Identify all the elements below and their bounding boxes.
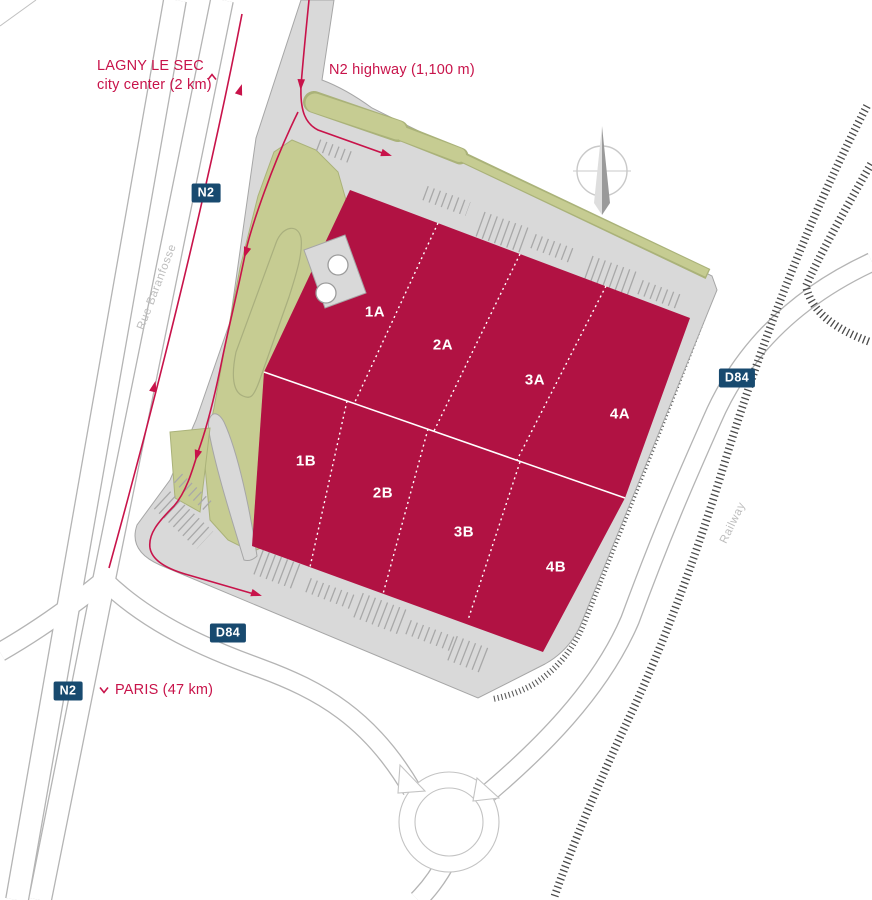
- site-access-map: LAGNY LE SEC city center (2 km) N2 highw…: [0, 0, 872, 900]
- map-canvas: [0, 0, 872, 900]
- roundabout-island: [415, 788, 483, 856]
- compass-icon: [573, 126, 631, 215]
- tank-circle: [316, 283, 336, 303]
- corner-road-line: [0, 0, 36, 26]
- railway-branch-track: [806, 164, 871, 342]
- traffic-island: [398, 765, 425, 793]
- roundabout: [398, 765, 499, 872]
- arrow-icon: [235, 83, 246, 96]
- tank-circle: [328, 255, 348, 275]
